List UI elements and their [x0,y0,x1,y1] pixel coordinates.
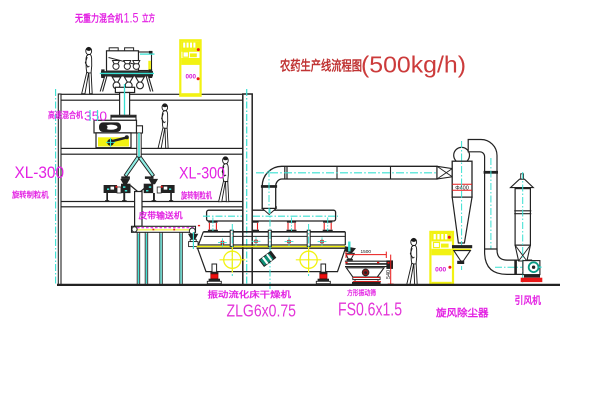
svg-text:高速混合机: 高速混合机 [48,109,83,120]
svg-text:000: 000 [186,74,197,81]
svg-text:农药生产线流程图: 农药生产线流程图 [279,58,362,74]
svg-text:ZLG6x0.75: ZLG6x0.75 [227,301,297,321]
svg-text:XL-300: XL-300 [179,165,225,183]
svg-text:350: 350 [84,110,107,124]
svg-text:XL-300: XL-300 [15,164,65,182]
svg-text:1500: 1500 [361,249,372,254]
svg-text:旋转制粒机: 旋转制粒机 [11,190,48,200]
svg-text:540: 540 [386,270,392,279]
svg-text:FS0.6x1.5: FS0.6x1.5 [338,299,402,320]
svg-text:旋风除尘器: 旋风除尘器 [435,307,489,320]
svg-text:皮带输送机: 皮带输送机 [137,211,183,221]
svg-text:方形振动筛: 方形振动筛 [347,288,376,297]
svg-text:引风机: 引风机 [515,294,542,307]
svg-text:无重力混合机: 无重力混合机 [74,12,123,25]
svg-text:振动流化床干燥机: 振动流化床干燥机 [208,289,292,300]
svg-text:立方: 立方 [142,13,155,25]
svg-text:000: 000 [435,267,447,274]
svg-text:(500kg/h): (500kg/h) [361,52,466,78]
svg-text:旋转制粒机: 旋转制粒机 [180,190,212,201]
svg-text:1.5: 1.5 [124,11,139,26]
